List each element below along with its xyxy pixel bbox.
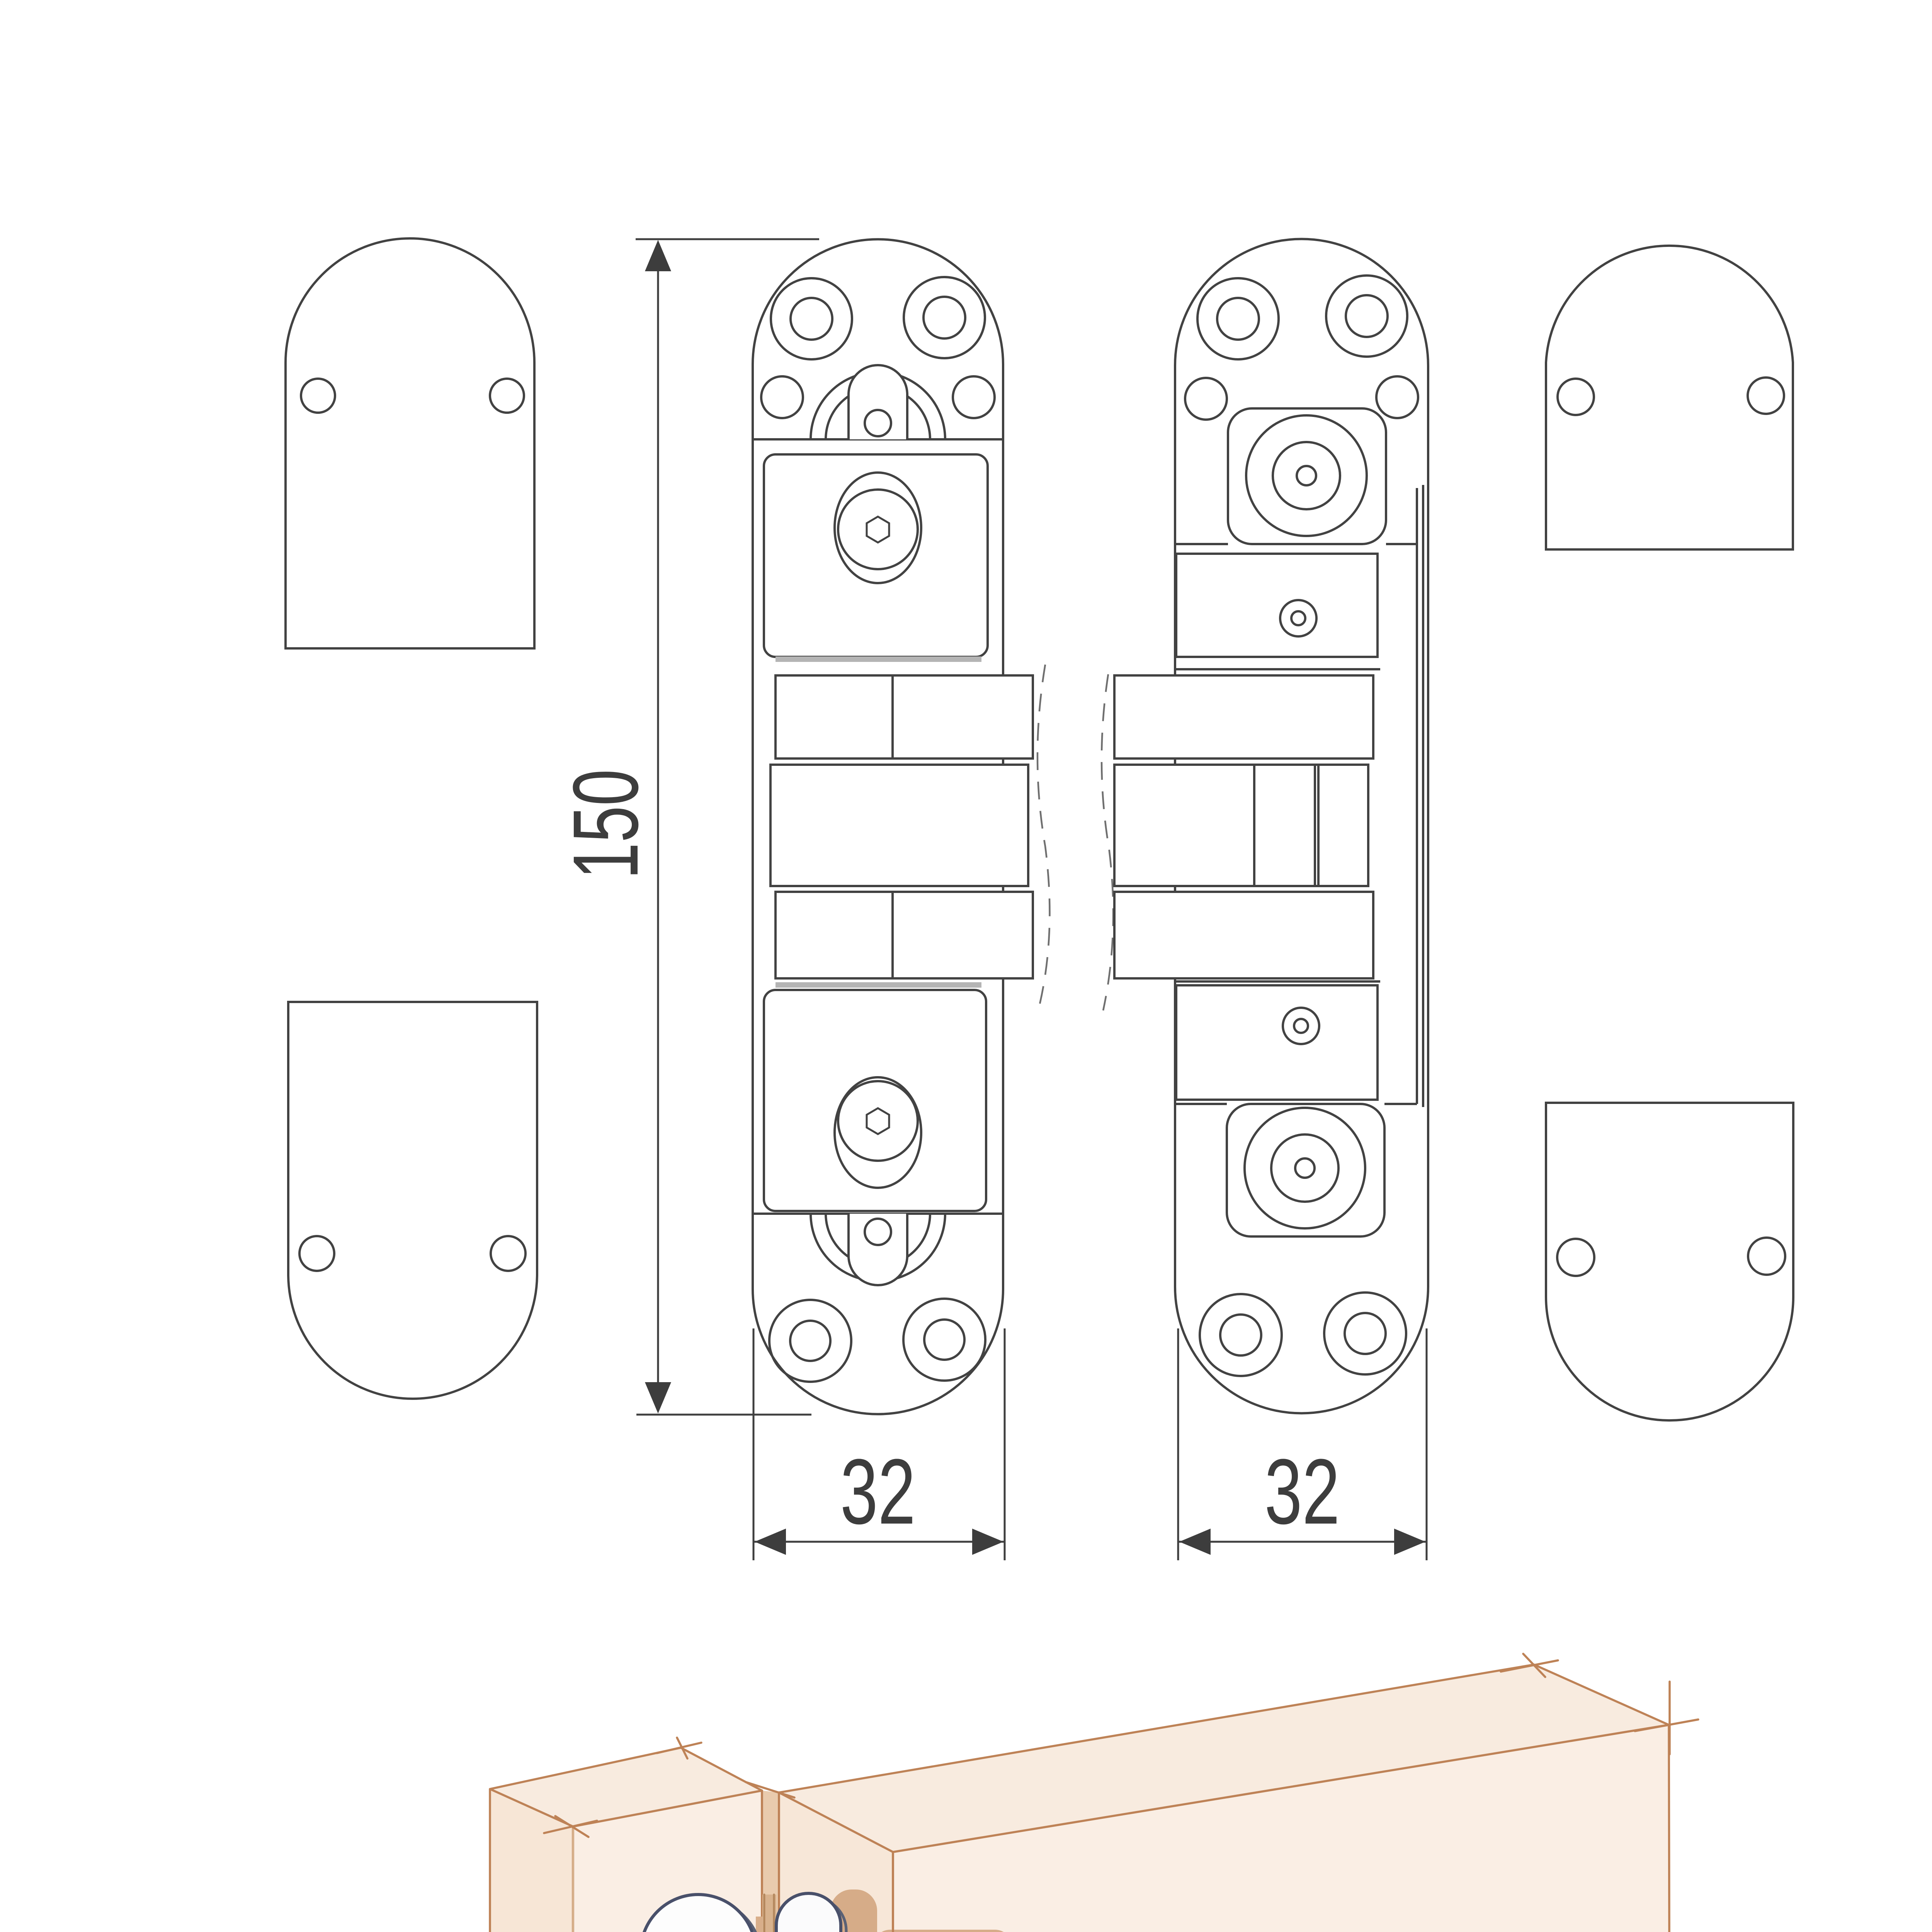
svg-text:32: 32 (840, 1440, 916, 1543)
svg-text:32: 32 (1265, 1440, 1340, 1543)
svg-text:150: 150 (554, 769, 657, 879)
